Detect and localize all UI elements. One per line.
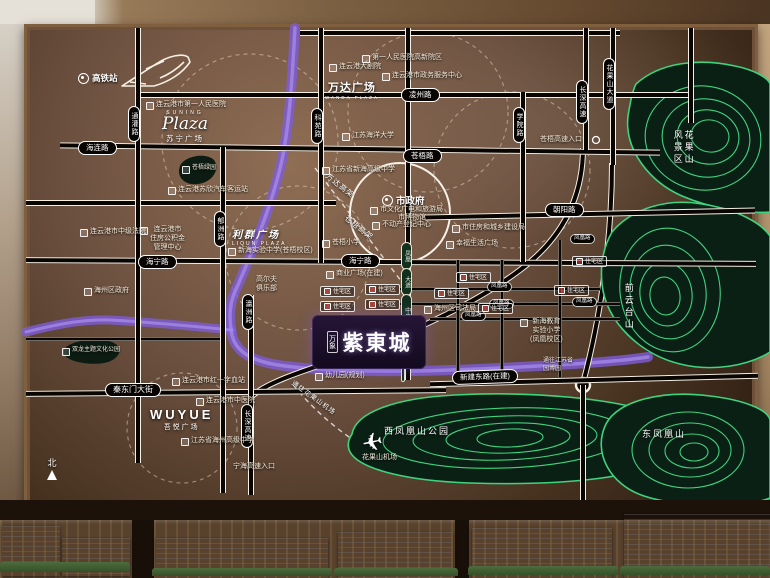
road-label-xueyuan: 学院路 [513,107,525,143]
road-label-hailian: 海连路 [78,141,117,155]
north-label: 北 [47,456,57,469]
median-label: 凤凰 [404,250,410,262]
median-segment: 大道 [401,268,412,296]
road-label-haining-2: 海宁路 [138,255,177,269]
chip-label: 住宅区 [378,287,396,293]
label-airport: 花果山机场 [362,454,397,463]
road-tongguan-south [135,393,141,463]
wuyue-cn: 吾悦广场 [150,422,213,432]
residential-chip: 住宅区 [572,256,607,267]
poi-theater: 连云港大剧院 [329,63,381,72]
poi-label: 不动产登记中心 [382,221,431,230]
gov-label: 市政府 [396,193,425,207]
project-badge: 万象 [327,331,338,353]
bus-icon [168,187,176,195]
liqun-cn: 利群广场 [232,226,287,241]
median-segment: 凤凰 [401,242,412,270]
poi-label: 江苏海洋大学 [352,132,394,141]
house-icon [438,290,445,297]
model-hedge [334,568,458,576]
airport-label: 花果山机场 [362,454,397,463]
hospital-icon [172,378,180,386]
poi-label: 连云港市政务服务中心 [392,72,462,81]
road-label-chaoyang: 朝阳路 [545,203,584,217]
school-icon [181,438,189,446]
chip-label: 住宅区 [447,291,465,297]
mall-icon [446,241,454,249]
poi-ocean-university: 江苏海洋大学 [342,132,394,141]
road-label-cangwu: 苍梧路 [403,149,442,163]
road-right-edge [688,28,694,123]
wuyue-plaza-logo: WUYUE 吾悦广场 [150,407,213,432]
poi-haizhou-highschool: 江苏省海州高级中学 [181,437,254,446]
chip-label: 住宅区 [378,302,396,308]
poi-label: 连云港市红十字血站 [182,377,245,386]
poi-hospital-1: 连云港市第一人民医院 [146,101,226,110]
road-label-xinjiandong: 新建东路(在建) [452,369,518,385]
table-gap [132,520,154,578]
poi-label: 幸福生活广场 [456,240,498,249]
model-hedge [152,568,332,576]
road-label-qindongmen: 秦东门大街 [105,383,161,397]
poi-label: 苍梧小学 [332,239,360,248]
poi-primary-school: 新海教育 实验小学 (凤凰校区) [520,318,563,344]
chip-label: 住宅区 [333,289,351,295]
house-icon [576,258,583,265]
poi-label: 连云港市中级法院 [90,228,146,237]
residential-chip: 住宅区 [365,284,400,295]
gov-ring-icon [382,195,393,206]
road-label-huaguoshan-dadao: 花果山大道 [603,58,615,110]
park-icon [182,166,190,174]
road-minor-v2 [500,260,504,378]
road-label-haining: 海宁路 [341,254,380,268]
poi-label: 商业广场(在建) [336,270,383,279]
school-icon [520,319,528,327]
label-kindergarten: 幼儿园(规划) [315,372,365,381]
residential-chip: 住宅区 [320,301,355,312]
hsr-station: 高铁站 [78,72,118,84]
road-minor-4 [26,337,226,341]
hospital-icon [362,55,370,63]
entrance-label: 苍梧高速入口 [540,136,582,145]
house-icon [460,274,467,281]
road-label-minor: 凤凰路 [487,282,512,292]
poi-label: 新海实验中学(苍梧校区) [238,247,313,256]
poi-label: 海州区政府 [94,287,129,296]
poi-golf-club: 高尔夫 俱乐部 [256,276,277,294]
poi-housing-bureau: 市住房和城乡建设局 [452,224,525,233]
poi-tcm-hospital: 连云港市中医院 [196,397,255,406]
suning-plaza-logo: SUNING Plaza 苏宁广场 [140,110,230,144]
suning-cn: 苏宁广场 [140,133,230,144]
poi-court: 连云港市中级法院 [80,228,146,237]
wanda-plaza-logo: 万达广场 WANDA PLAZA [325,79,379,100]
house-icon [482,305,489,312]
road-label-yingzhou: 瀛洲路 [242,294,254,330]
road-label-changshen: 长深高速 [576,80,588,124]
poi-label: 第一人民医院高新院区 [372,54,442,63]
poi-label: 海州区司法局 [434,305,476,314]
photo-of-map-board: 凤凰 大道 中央景观带 海连路 凌州路 苍梧路 海宁路 海宁路 朝阳路 秦东门大… [0,0,770,578]
school-icon [322,167,330,175]
residential-chip: 住宅区 [478,303,513,314]
median-label: 大道 [404,276,410,288]
poi-label: 新海教育 实验小学 (凤凰校区) [530,318,563,344]
poi-label: 连云港市第一人民医院 [156,101,226,110]
model-hedge [468,566,618,575]
road-top [300,30,620,36]
project-name: 紫東城 [343,327,412,357]
road-label-tongguan: 通灌路 [128,106,140,142]
road-label-keyuan: 科苑路 [311,108,323,144]
poi-label: 江苏省海州高级中学 [191,437,254,446]
gov-icon [424,306,432,314]
chip-label: 住宅区 [585,259,603,265]
road-mid-left [26,200,336,206]
hospital-icon [146,102,154,110]
school-icon [228,248,236,256]
poi-service-center: 连云港市政务服务中心 [382,72,462,81]
label-dongfenghuang: 东凤凰山 [642,427,686,440]
road-label-yuzhou: 郁洲路 [214,211,226,247]
chip-label: 住宅区 [469,275,487,281]
poi-xinhai-exp-school: 新海实验中学(苍梧校区) [228,247,313,256]
suning-script: Plaza [140,116,230,133]
wuyue-en: WUYUE [150,407,213,422]
residential-chip: 住宅区 [320,286,355,297]
wanda-cn: 万达广场 [325,79,379,95]
school-icon [322,240,330,248]
poi-hospital-gaoxin: 第一人民医院高新院区 [362,54,442,63]
label-shuanglong-park: 双龙主题文化公园 [62,347,120,356]
hospital-icon [196,398,204,406]
label-huaguoshan-scenic: 花果山 风景区 [672,130,694,166]
gov-icon [370,207,378,215]
road-label-minor: 凤凰路 [570,234,595,244]
label-qianyuntai: 前云台山 [623,283,634,331]
poi-label: 连云港市 住房公积金 管理中心 [150,226,185,252]
poi-cangwu-primary: 苍梧小学 [322,239,360,248]
house-icon [369,286,376,293]
north-arrow-icon [47,470,57,480]
wanda-en: WANDA PLAZA [325,95,379,100]
model-hedge [0,562,130,572]
poi-haizhou-gov: 海州区政府 [84,287,129,296]
chip-label: 住宅区 [333,304,351,310]
poi-label: 市住房和城乡建设局 [462,224,525,233]
theater-icon [329,64,337,72]
liqun-plaza-logo: 利群广场 LIQUN PLAZA [232,226,287,247]
park-label: 苍梧绿园 [192,165,216,173]
poi-to-expo-park: 通往江苏省 园博园 [543,358,573,373]
poi-blood-center: 连云港市红十字血站 [172,377,245,386]
residential-chip: 住宅区 [365,299,400,310]
gov-icon [80,229,88,237]
project-zidongcheng: 万象 紫東城 [312,315,426,369]
poi-label: 连云港市中医院 [206,397,255,406]
label-ninghai-entrance: 宁海高速入口 [233,463,275,472]
residential-chip: 住宅区 [434,288,469,299]
poi-justice-bureau: 海州区司法局 [424,305,476,314]
kindergarten-label: 幼儿园(规划) [325,372,365,381]
poi-marker-icon [315,373,323,381]
road-keyuan [318,28,324,263]
road-yuzhou [220,147,226,393]
house-icon [558,287,565,294]
residential-chip: 住宅区 [456,272,491,283]
gov-icon [372,222,380,230]
wall-left [0,24,27,520]
label-xifenghuang: 西凤凰山公园 [384,424,450,437]
road-tongguan [135,28,141,393]
gov-icon [84,288,92,296]
station-ring-icon [78,73,89,84]
gov-icon [452,225,460,233]
poi-label: 高尔夫 俱乐部 [256,276,277,294]
road-minor-v3 [558,240,562,377]
entrance-label: 宁海高速入口 [233,463,275,472]
poi-biz-plaza: 商业广场(在建) [326,270,383,279]
road-label-minor: 凤凰路 [572,297,597,307]
chip-label: 住宅区 [567,288,585,294]
label-expressway-entrance: 苍梧高速入口 [540,136,582,145]
station-label: 高铁站 [92,72,118,84]
road-huaguoshan-south [580,385,586,510]
school-icon [342,133,350,141]
house-icon [369,301,376,308]
residential-chip: 住宅区 [554,285,589,296]
poi-label: 江苏省新海高级中学 [332,166,395,175]
park-label: 双龙主题文化公园 [72,347,120,355]
poi-realestate-registry: 不动产登记中心 [372,221,431,230]
road-label-lingzhou: 凌州路 [401,88,440,102]
mall-icon [326,271,334,279]
poi-label: 通往江苏省 园博园 [543,358,573,373]
poi-label: 连云港苏欣汽车客运站 [178,186,248,195]
poi-bus-station: 连云港苏欣汽车客运站 [168,186,248,195]
poi-housing-fund: 连云港市 住房公积金 管理中心 [140,226,185,252]
poi-xinhai-highschool: 江苏省新海高级中学 [322,166,395,175]
chip-label: 住宅区 [491,306,509,312]
wall-right [756,24,770,524]
gov-icon [382,73,390,81]
label-cangwu-green: 苍梧绿园 [182,165,216,174]
house-icon [324,288,331,295]
park-icon [62,348,70,356]
compass-north: 北 [47,456,57,480]
gov-icon [140,227,148,235]
city-government: 市政府 [382,193,425,207]
poi-life-plaza: 幸福生活广场 [446,240,498,249]
poi-label: 连云港大剧院 [339,63,381,72]
model-hedge [620,566,770,575]
house-icon [324,303,331,310]
